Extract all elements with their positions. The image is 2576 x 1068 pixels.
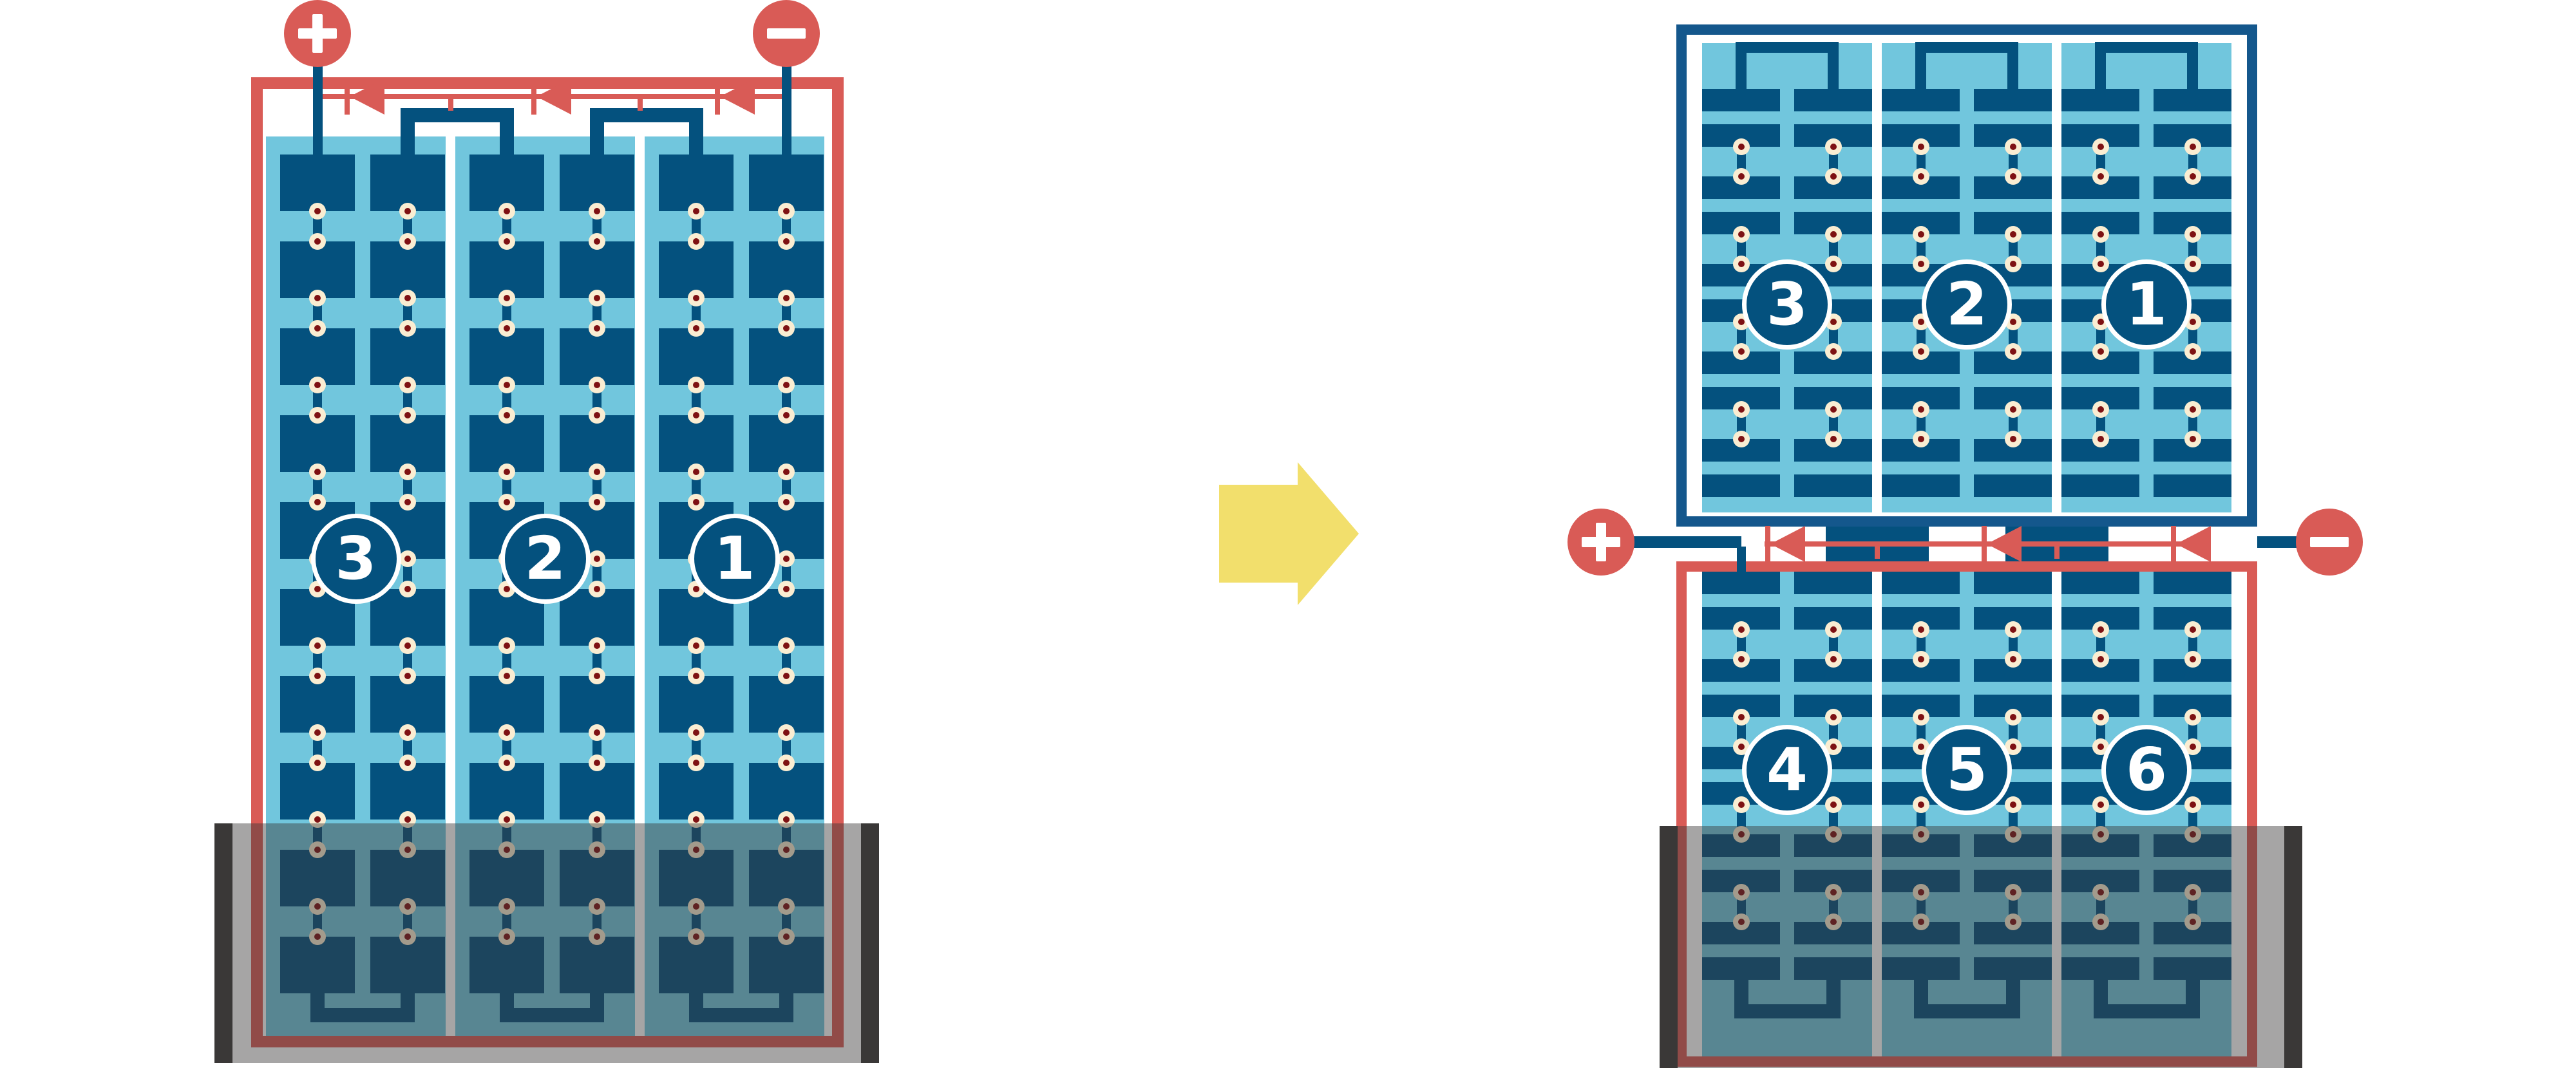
solder-dot-core <box>693 499 699 505</box>
solder-dot-icon <box>1913 651 1929 668</box>
bypass-diode-icon <box>1770 526 1805 562</box>
solder-dot-icon <box>498 203 515 220</box>
solder-dot-icon <box>778 550 795 567</box>
solder-dot-icon <box>309 668 326 684</box>
solder-dot-icon <box>778 377 795 393</box>
solder-dot-core <box>2190 406 2196 413</box>
bypass-diode-icon <box>720 79 755 115</box>
solder-dot-icon <box>778 724 795 741</box>
solder-dot-icon <box>589 203 605 220</box>
solder-dot-icon <box>688 464 705 480</box>
top-bridge-connector <box>401 108 514 122</box>
solar-half-cell <box>1702 572 1780 594</box>
solar-half-cell <box>2154 572 2231 594</box>
solder-dot-icon <box>2092 168 2109 185</box>
solar-half-cell <box>1974 89 2052 111</box>
solder-dot-core <box>2190 144 2196 150</box>
solder-dot-core <box>2098 348 2104 355</box>
solder-dot-icon <box>1913 168 1929 185</box>
solder-dot-core <box>2190 626 2196 633</box>
solder-dot-icon <box>2005 709 2022 726</box>
diagram-canvas: 321321456 <box>0 0 2576 1068</box>
solder-dot-icon <box>399 581 416 597</box>
solder-dot-icon <box>1733 343 1750 360</box>
solder-dot-icon <box>399 754 416 771</box>
solder-dot-icon <box>2005 256 2022 272</box>
solder-dot-icon <box>2092 226 2109 243</box>
solder-dot-core <box>2190 801 2196 808</box>
top-bridge-connector <box>2095 53 2106 89</box>
terminal-lead <box>2257 536 2299 548</box>
solar-half-cell <box>1974 572 2052 594</box>
solder-dot-core <box>504 586 510 592</box>
solder-dot-icon <box>399 494 416 511</box>
solder-dot-core <box>783 382 790 388</box>
solder-dot-core <box>693 642 699 649</box>
solder-dot-core <box>783 499 790 505</box>
solder-dot-icon <box>2005 401 2022 418</box>
solder-dot-icon <box>2005 796 2022 813</box>
solder-dot-icon <box>1733 796 1750 813</box>
solder-dot-icon <box>1825 343 1842 360</box>
solar-half-cell <box>1794 474 1872 497</box>
solder-dot-core <box>314 729 321 736</box>
solder-dot-core <box>1830 744 1837 750</box>
negative-terminal <box>753 0 820 67</box>
solder-dot-icon <box>2092 796 2109 813</box>
top-bridge-connector <box>500 122 514 156</box>
solar-half-cell <box>2061 572 2139 594</box>
diode-tap-line <box>448 97 453 111</box>
solder-dot-icon <box>2092 431 2109 447</box>
solder-dot-icon <box>498 377 515 393</box>
solder-dot-icon <box>2184 226 2201 243</box>
solar-half-cell <box>2154 89 2231 111</box>
solder-dot-core <box>1738 173 1745 180</box>
solder-dot-icon <box>2184 709 2201 726</box>
top-bridge-connector <box>590 108 703 122</box>
solder-dot-core <box>504 760 510 766</box>
solder-dot-icon <box>1733 168 1750 185</box>
solder-dot-core <box>314 325 321 332</box>
solder-dot-core <box>594 499 600 505</box>
solder-dot-core <box>1738 144 1745 150</box>
solder-dot-icon <box>589 754 605 771</box>
solder-dot-core <box>2190 348 2196 355</box>
negative-terminal <box>2296 509 2363 576</box>
solder-dot-core <box>783 295 790 301</box>
plus-icon <box>1567 509 1634 576</box>
solder-dot-core <box>1918 319 1924 325</box>
solder-dot-icon <box>1733 401 1750 418</box>
solder-dot-core <box>2010 173 2016 180</box>
solder-dot-core <box>783 586 790 592</box>
solder-dot-core <box>1918 348 1924 355</box>
solder-dot-icon <box>2092 343 2109 360</box>
shade-end-bar <box>1660 826 1678 1068</box>
solder-dot-icon <box>309 203 326 220</box>
solder-dot-core <box>2098 319 2104 325</box>
solder-dot-core <box>314 382 321 388</box>
solder-dot-icon <box>589 464 605 480</box>
bypass-diode-icon <box>1765 526 1770 562</box>
solder-dot-icon <box>778 407 795 424</box>
solder-dot-core <box>1738 801 1745 808</box>
solder-dot-icon <box>2092 651 2109 668</box>
solder-dot-icon <box>589 581 605 597</box>
solder-dot-icon <box>778 203 795 220</box>
top-bridge-connector <box>1736 42 1839 53</box>
solder-dot-icon <box>399 724 416 741</box>
solder-dot-core <box>2190 744 2196 750</box>
bypass-diode-icon <box>2171 526 2176 562</box>
solder-dot-icon <box>589 668 605 684</box>
solder-dot-core <box>404 586 411 592</box>
solder-dot-core <box>314 208 321 214</box>
solder-dot-icon <box>688 668 705 684</box>
solder-dot-core <box>783 642 790 649</box>
solder-dot-core <box>2010 144 2016 150</box>
solder-dot-core <box>693 382 699 388</box>
solder-dot-core <box>1738 319 1745 325</box>
solder-dot-core <box>2190 714 2196 720</box>
solder-dot-core <box>404 325 411 332</box>
solder-dot-core <box>1830 348 1837 355</box>
solder-dot-core <box>1738 436 1745 442</box>
solder-dot-icon <box>1825 621 1842 638</box>
solder-dot-core <box>404 673 411 679</box>
solder-dot-icon <box>309 464 326 480</box>
solder-dot-core <box>1918 436 1924 442</box>
top-bridge-connector <box>689 122 703 156</box>
solder-dot-core <box>1918 231 1924 238</box>
plus-icon <box>284 0 351 67</box>
solder-dot-core <box>594 816 600 823</box>
shade-end-bar <box>861 823 879 1063</box>
solder-dot-core <box>783 760 790 766</box>
terminal-lead <box>1737 547 1746 572</box>
solder-dot-icon <box>688 203 705 220</box>
solder-dot-icon <box>498 637 515 654</box>
solder-dot-core <box>2010 436 2016 442</box>
solder-dot-core <box>693 729 699 736</box>
solder-dot-icon <box>1825 138 1842 155</box>
solder-dot-icon <box>2005 431 2022 447</box>
solar-half-cell <box>1794 572 1872 594</box>
bypass-diode-icon <box>1982 526 1987 562</box>
solder-dot-icon <box>2005 621 2022 638</box>
solder-dot-icon <box>778 581 795 597</box>
solder-dot-icon <box>399 320 416 337</box>
solder-dot-core <box>404 382 411 388</box>
solder-dot-icon <box>309 724 326 741</box>
solder-dot-core <box>2098 436 2104 442</box>
solder-dot-core <box>404 469 411 475</box>
solder-dot-icon <box>1825 651 1842 668</box>
solder-dot-icon <box>589 637 605 654</box>
solder-dot-icon <box>309 407 326 424</box>
solder-dot-icon <box>589 377 605 393</box>
string-number-circle: 4 <box>1742 725 1832 815</box>
terminal-lead <box>1623 536 1741 548</box>
solder-dot-icon <box>2184 401 2201 418</box>
solder-dot-icon <box>589 724 605 741</box>
solder-dot-core <box>314 412 321 418</box>
solder-dot-icon <box>1913 343 1929 360</box>
solder-dot-icon <box>2005 168 2022 185</box>
solder-dot-core <box>1830 319 1837 325</box>
solder-dot-icon <box>1913 256 1929 272</box>
solder-dot-icon <box>1825 796 1842 813</box>
solder-dot-icon <box>399 290 416 306</box>
solder-dot-icon <box>688 233 705 250</box>
solder-dot-icon <box>778 494 795 511</box>
solder-dot-core <box>2010 406 2016 413</box>
solder-dot-core <box>404 238 411 245</box>
string-number-circle: 1 <box>690 514 780 604</box>
solder-dot-core <box>314 760 321 766</box>
solder-dot-core <box>1830 173 1837 180</box>
solder-dot-core <box>1738 714 1745 720</box>
solder-dot-core <box>504 238 510 245</box>
solder-dot-core <box>1830 656 1837 662</box>
right-arrow-icon <box>1298 462 1359 605</box>
solder-dot-core <box>2098 714 2104 720</box>
solder-dot-icon <box>1733 226 1750 243</box>
bypass-diode-icon <box>1987 526 2022 562</box>
solder-dot-core <box>2098 744 2104 750</box>
solder-dot-icon <box>2184 431 2201 447</box>
top-bridge-connector <box>2007 53 2018 89</box>
solder-dot-core <box>783 673 790 679</box>
solder-dot-core <box>1830 144 1837 150</box>
positive-terminal <box>1567 509 1634 576</box>
solder-dot-core <box>504 208 510 214</box>
solder-dot-icon <box>2005 343 2022 360</box>
solder-dot-core <box>594 325 600 332</box>
solder-dot-core <box>783 238 790 245</box>
solder-dot-core <box>504 295 510 301</box>
solder-dot-icon <box>1733 431 1750 447</box>
solder-dot-icon <box>498 290 515 306</box>
solder-dot-core <box>594 412 600 418</box>
solder-dot-icon <box>2184 343 2201 360</box>
shade-end-bar <box>214 823 232 1063</box>
solder-dot-icon <box>498 233 515 250</box>
solder-dot-core <box>2010 231 2016 238</box>
minus-icon <box>753 0 820 67</box>
solder-dot-core <box>1738 261 1745 267</box>
solder-dot-icon <box>1825 226 1842 243</box>
string-number-circle: 2 <box>1922 259 2012 350</box>
solder-dot-core <box>404 816 411 823</box>
solder-dot-core <box>594 760 600 766</box>
solder-dot-icon <box>1825 401 1842 418</box>
solder-dot-icon <box>309 754 326 771</box>
solder-dot-core <box>1918 714 1924 720</box>
solder-dot-icon <box>688 320 705 337</box>
solder-dot-icon <box>309 290 326 306</box>
solder-dot-icon <box>2092 621 2109 638</box>
string-number-circle: 6 <box>2101 725 2192 815</box>
solder-dot-core <box>594 586 600 592</box>
solder-dot-core <box>783 556 790 562</box>
solder-dot-icon <box>498 320 515 337</box>
solder-dot-core <box>2190 319 2196 325</box>
solder-dot-icon <box>1913 431 1929 447</box>
solder-dot-icon <box>1825 431 1842 447</box>
solder-dot-icon <box>688 290 705 306</box>
solder-dot-icon <box>309 377 326 393</box>
solder-dot-core <box>1918 744 1924 750</box>
solder-dot-icon <box>589 494 605 511</box>
solder-dot-icon <box>688 377 705 393</box>
solder-dot-core <box>1738 626 1745 633</box>
solder-dot-core <box>693 816 699 823</box>
junction-stub <box>1826 527 1929 541</box>
solder-dot-icon <box>778 290 795 306</box>
solder-dot-core <box>314 642 321 649</box>
solder-dot-icon <box>2005 138 2022 155</box>
solder-dot-core <box>783 469 790 475</box>
solder-dot-core <box>693 412 699 418</box>
solder-dot-icon <box>589 290 605 306</box>
solder-dot-icon <box>589 320 605 337</box>
solder-dot-core <box>314 816 321 823</box>
solder-dot-icon <box>399 407 416 424</box>
solder-dot-core <box>783 412 790 418</box>
solder-dot-core <box>594 729 600 736</box>
solder-dot-icon <box>1825 168 1842 185</box>
solder-dot-core <box>404 556 411 562</box>
solder-dot-icon <box>778 464 795 480</box>
solder-dot-icon <box>2005 651 2022 668</box>
terminal-lead <box>313 64 323 156</box>
solder-dot-icon <box>498 668 515 684</box>
solar-half-cell <box>2061 474 2139 497</box>
solder-dot-core <box>504 412 510 418</box>
right-arrow-icon <box>1219 485 1298 583</box>
solder-dot-core <box>2010 801 2016 808</box>
solder-dot-core <box>404 642 411 649</box>
solder-dot-icon <box>399 550 416 567</box>
solder-dot-core <box>1830 406 1837 413</box>
solder-dot-core <box>2010 626 2016 633</box>
solder-dot-icon <box>2184 651 2201 668</box>
solder-dot-core <box>693 295 699 301</box>
solder-dot-icon <box>1733 256 1750 272</box>
solder-dot-core <box>314 295 321 301</box>
solder-dot-core <box>314 469 321 475</box>
solder-dot-core <box>2098 801 2104 808</box>
solar-half-cell <box>2061 89 2139 111</box>
solder-dot-icon <box>399 637 416 654</box>
solder-dot-core <box>2010 348 2016 355</box>
solder-dot-core <box>2010 319 2016 325</box>
top-bridge-connector <box>2187 53 2198 89</box>
solder-dot-core <box>314 673 321 679</box>
solder-dot-core <box>693 238 699 245</box>
string-number-circle: 3 <box>1742 259 1832 350</box>
solder-dot-icon <box>1733 621 1750 638</box>
string-number-circle: 2 <box>500 514 591 604</box>
solder-dot-core <box>1738 656 1745 662</box>
solder-dot-core <box>504 499 510 505</box>
solder-dot-icon <box>309 494 326 511</box>
solder-dot-core <box>2098 656 2104 662</box>
top-bridge-connector <box>590 122 604 156</box>
solder-dot-core <box>2190 173 2196 180</box>
top-bridge-connector <box>1828 53 1839 89</box>
solder-dot-icon <box>1825 256 1842 272</box>
top-bridge-connector <box>2095 42 2198 53</box>
solder-dot-core <box>594 642 600 649</box>
string-number-circle: 5 <box>1922 725 2012 815</box>
solder-dot-core <box>404 760 411 766</box>
solder-dot-core <box>1830 801 1837 808</box>
solder-dot-core <box>1918 261 1924 267</box>
solder-dot-icon <box>498 407 515 424</box>
top-bridge-connector <box>1915 53 1926 89</box>
solder-dot-core <box>594 556 600 562</box>
solder-dot-core <box>314 499 321 505</box>
solder-dot-icon <box>589 233 605 250</box>
bypass-diode-icon <box>715 79 720 115</box>
solder-dot-icon <box>2092 256 2109 272</box>
solder-dot-core <box>2098 626 2104 633</box>
diode-tap-line <box>1875 547 1880 559</box>
solder-dot-core <box>1738 231 1745 238</box>
shade-end-bar <box>2284 826 2302 1068</box>
solder-dot-icon <box>778 637 795 654</box>
solder-dot-core <box>2098 406 2104 413</box>
solder-dot-icon <box>399 233 416 250</box>
solder-dot-icon <box>2184 256 2201 272</box>
solder-dot-icon <box>688 724 705 741</box>
solder-dot-core <box>504 642 510 649</box>
solder-dot-core <box>1738 406 1745 413</box>
solder-dot-icon <box>2184 796 2201 813</box>
solder-dot-icon <box>589 550 605 567</box>
solder-dot-icon <box>309 320 326 337</box>
solder-dot-icon <box>688 754 705 771</box>
bypass-diode-icon <box>2176 526 2211 562</box>
solder-dot-core <box>504 729 510 736</box>
solder-dot-icon <box>399 668 416 684</box>
shade-overlay <box>1660 826 2302 1068</box>
solder-dot-icon <box>688 407 705 424</box>
solder-dot-core <box>2098 231 2104 238</box>
solder-dot-core <box>594 295 600 301</box>
solder-dot-core <box>314 586 321 592</box>
solder-dot-core <box>314 238 321 245</box>
solder-dot-core <box>1918 406 1924 413</box>
solder-dot-core <box>1830 261 1837 267</box>
solder-dot-icon <box>2184 168 2201 185</box>
solder-dot-core <box>404 208 411 214</box>
top-bridge-connector <box>1915 42 2018 53</box>
bypass-diode-icon <box>531 79 536 115</box>
solder-dot-icon <box>778 233 795 250</box>
solder-dot-icon <box>2184 621 2201 638</box>
solder-dot-core <box>404 412 411 418</box>
solder-dot-core <box>2190 436 2196 442</box>
solder-dot-core <box>2190 261 2196 267</box>
solder-dot-core <box>1738 348 1745 355</box>
solder-dot-core <box>1830 626 1837 633</box>
solar-half-cell <box>1702 89 1780 111</box>
solder-dot-icon <box>2092 709 2109 726</box>
